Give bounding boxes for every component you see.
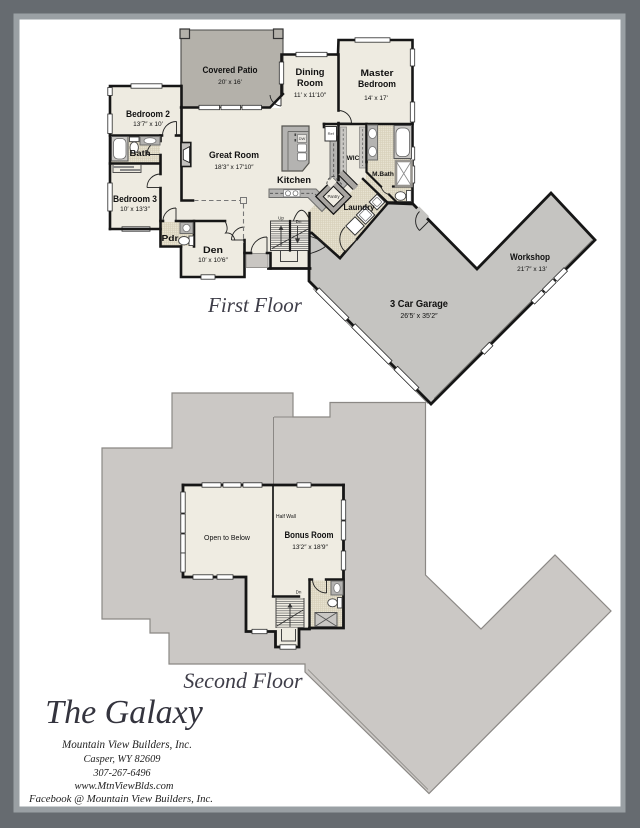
svg-text:The Galaxy: The Galaxy [45,694,204,731]
svg-text:10′ x 10′6″: 10′ x 10′6″ [198,257,228,264]
svg-text:Laundry: Laundry [344,202,375,212]
svg-text:www.MtnViewBlds.com: www.MtnViewBlds.com [75,780,174,792]
svg-text:14' x 17': 14' x 17' [364,95,388,102]
svg-text:Workshop: Workshop [510,252,550,262]
svg-text:M.Bath: M.Bath [372,171,394,178]
svg-text:13′7″ x 10′: 13′7″ x 10′ [133,121,163,128]
svg-text:Bonus Room: Bonus Room [285,530,334,541]
svg-text:Second Floor: Second Floor [183,668,303,693]
svg-text:Pdr: Pdr [162,233,180,243]
svg-text:20' x 16': 20' x 16' [218,79,242,86]
svg-text:Open to Below: Open to Below [204,535,251,542]
svg-text:Dn: Dn [296,219,302,224]
svg-text:Den: Den [203,245,223,256]
svg-text:3 Car Garage: 3 Car Garage [390,299,448,310]
svg-text:Kitchen: Kitchen [277,175,311,186]
svg-text:Master: Master [361,68,394,79]
svg-text:Covered Patio: Covered Patio [203,65,258,76]
svg-text:Mountain View Builders, Inc.: Mountain View Builders, Inc. [61,739,192,751]
svg-text:Dining: Dining [296,67,325,78]
svg-text:Dn: Dn [296,590,302,595]
svg-text:Facebook @ Mountain View Build: Facebook @ Mountain View Builders, Inc. [28,793,213,805]
svg-text:Room: Room [297,78,323,89]
svg-text:DW: DW [299,136,306,141]
svg-text:18′3″ x 17′10″: 18′3″ x 17′10″ [214,164,254,171]
svg-text:21′7″ x 13′: 21′7″ x 13′ [517,266,547,273]
svg-text:WIC: WIC [347,155,360,162]
svg-text:Bedroom 2: Bedroom 2 [126,109,170,120]
svg-text:Bath: Bath [130,148,151,158]
svg-text:Casper, WY 82609: Casper, WY 82609 [84,753,161,765]
svg-text:26′5′ x 35′2″: 26′5′ x 35′2″ [400,313,438,320]
svg-text:Bedroom: Bedroom [358,79,396,90]
svg-text:Ref: Ref [328,131,335,136]
svg-text:Great Room: Great Room [209,150,259,161]
svg-text:13′2″ x 18′9″: 13′2″ x 18′9″ [292,544,328,551]
svg-text:11′ x 11′10″: 11′ x 11′10″ [294,92,327,99]
svg-text:307-267-6496: 307-267-6496 [93,767,151,779]
svg-text:Bedroom 3: Bedroom 3 [113,194,157,205]
svg-text:Pantry: Pantry [327,194,340,199]
svg-text:10′ x 13′3″: 10′ x 13′3″ [120,206,150,213]
svg-text:Half Wall: Half Wall [276,514,296,520]
svg-text:Up: Up [278,216,284,221]
svg-text:First Floor: First Floor [207,293,303,317]
